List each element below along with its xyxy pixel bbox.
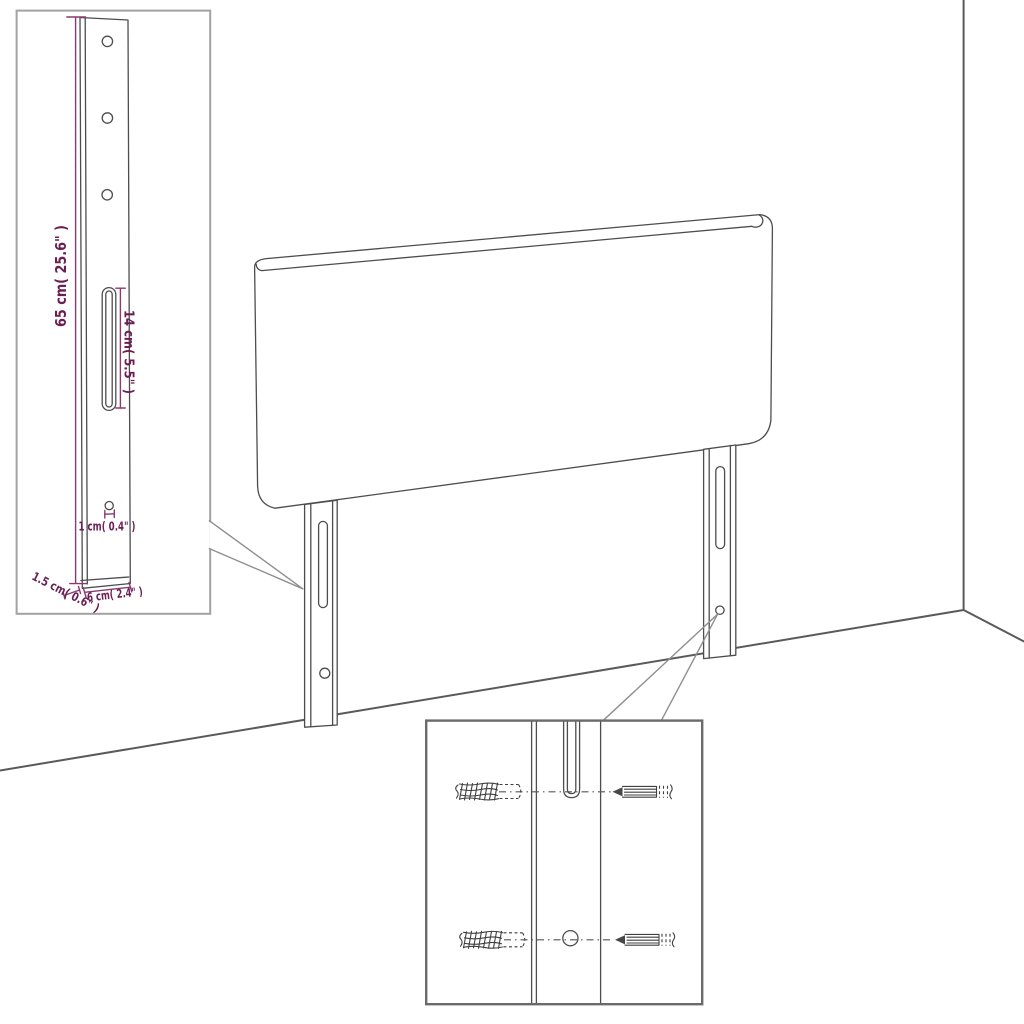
headboard	[255, 215, 773, 509]
headboard-assembly-diagram: 65 cm( 25.6" ) 14 cm( 5.5" ) 1 cm( 0.4" …	[0, 0, 1024, 1024]
floor-line-right	[964, 610, 1024, 642]
leg-height-label: 65 cm( 25.6" )	[52, 225, 70, 327]
hole-diameter-label: 1 cm( 0.4" )	[79, 520, 136, 534]
slot-length-label: 14 cm( 5.5" )	[121, 310, 136, 394]
left-mounting-leg	[305, 500, 338, 727]
assembly-diagram-page: 65 cm( 25.6" ) 14 cm( 5.5" ) 1 cm( 0.4" …	[0, 0, 1024, 1024]
hardware-detail-inset	[426, 721, 702, 1005]
right-mounting-leg	[704, 445, 736, 659]
inset-leg-drawing	[80, 18, 130, 589]
headboard-panel	[255, 215, 773, 509]
callout-line	[662, 614, 718, 720]
